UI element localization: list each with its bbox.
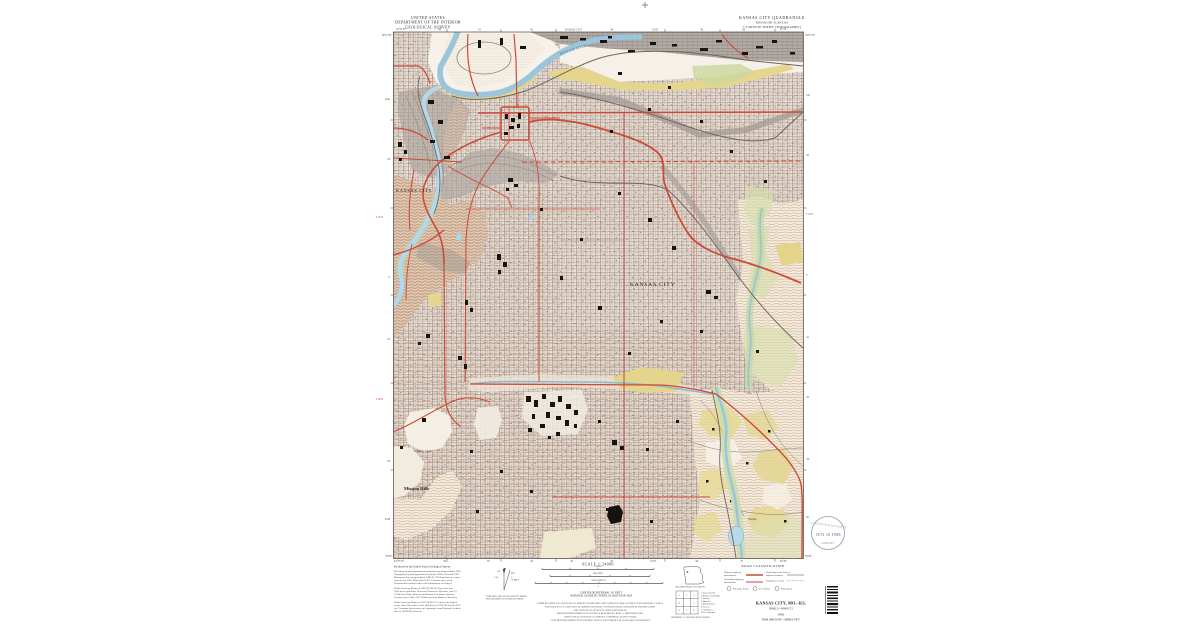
svg-text:1991: 1991 <box>778 613 785 617</box>
svg-text:QUADRANGLE LOCATION: QUADRANGLE LOCATION <box>675 586 704 589</box>
svg-text:18 MILS: 18 MILS <box>511 580 520 582</box>
svg-text:T 50 N: T 50 N <box>376 216 383 219</box>
svg-text:MN: MN <box>511 573 515 575</box>
svg-text:94°30': 94°30' <box>780 28 787 31</box>
svg-text:hard surface: hard surface <box>724 581 737 584</box>
svg-text:39°07'30": 39°07'30" <box>805 34 815 37</box>
svg-text:2 Kansas City North: 2 Kansas City North <box>701 595 721 597</box>
svg-text:1 MILE: 1 MILE <box>594 566 602 568</box>
svg-text:DEPARTMENT OF THE INTERIOR: DEPARTMENT OF THE INTERIOR <box>395 21 461 25</box>
svg-text:Produced by the United States: Produced by the United States Geological… <box>394 565 451 569</box>
svg-text:Mission Hills: Mission Hills <box>404 486 429 491</box>
svg-text:39°00': 39°00' <box>385 555 392 558</box>
svg-text:KANSAS CITY: KANSAS CITY <box>396 188 432 193</box>
svg-text:5 Independence: 5 Independence <box>701 604 715 606</box>
svg-text:KANSAS CITY QUADRANGLE: KANSAS CITY QUADRANGLE <box>739 15 805 20</box>
svg-text:Contours that conflict with re: Contours that conflict with revised plan… <box>394 582 452 585</box>
svg-text:MISSOURI–KANSAS: MISSOURI–KANSAS <box>756 20 788 24</box>
svg-text:improved surface: improved surface <box>766 574 784 577</box>
svg-text:KANSAS CITY, MO.–KS.: KANSAS CITY, MO.–KS. <box>756 601 806 606</box>
svg-text:JUN 16 1998: JUN 16 1998 <box>815 532 841 537</box>
svg-text:8 Lees Summit: 8 Lees Summit <box>701 612 715 614</box>
svg-text:GN: GN <box>497 571 501 573</box>
svg-text:DMA 5664 II SW—SERIES V875: DMA 5664 II SW—SERIES V875 <box>762 619 800 622</box>
svg-text:39°00': 39°00' <box>805 555 812 558</box>
svg-text:4338: 4338 <box>385 518 391 521</box>
svg-text:Unimproved road: Unimproved road <box>766 580 784 583</box>
svg-text:4344: 4344 <box>385 98 391 101</box>
svg-text:Survey NADCON software: Survey NADCON software <box>394 610 423 613</box>
svg-text:N3902.5—W9435/7.5: N3902.5—W9435/7.5 <box>769 608 794 611</box>
svg-text:39°07'30": 39°07'30" <box>382 34 392 37</box>
svg-text:1°: 1° <box>511 576 513 579</box>
svg-text:4 Shawnee: 4 Shawnee <box>701 601 711 603</box>
svg-text:94°30': 94°30' <box>780 560 787 563</box>
svg-text:NATIONAL GEODETIC VERTICAL DAT: NATIONAL GEODETIC VERTICAL DATUM OF 1929 <box>570 594 632 597</box>
svg-text:7 Grandview: 7 Grandview <box>701 609 713 611</box>
svg-text:32'30": 32'30" <box>652 29 659 32</box>
svg-text:ADJOINING 7.5′ QUADRANGLE NAME: ADJOINING 7.5′ QUADRANGLE NAMES <box>670 616 710 619</box>
svg-text:3 Liberty: 3 Liberty <box>701 598 710 600</box>
svg-text:ROAD CLASSIFICATION: ROAD CLASSIFICATION <box>742 564 785 568</box>
svg-text:7000 FEET: 7000 FEET <box>593 573 604 575</box>
svg-text:94°37'30": 94°37'30" <box>396 28 406 31</box>
svg-text:Swope: Swope <box>748 517 757 521</box>
svg-text:1 Leavenworth: 1 Leavenworth <box>701 593 716 595</box>
svg-text:KANSAS CITY: KANSAS CITY <box>565 29 582 32</box>
svg-text:UNITED STATES: UNITED STATES <box>411 16 445 20</box>
svg-text:94°37'30": 94°37'30" <box>394 560 404 563</box>
svg-text:1 KILOMETER: 1 KILOMETER <box>591 580 606 582</box>
svg-text:7.5 MINUTE SERIES (TOPOGRAPHIC: 7.5 MINUTE SERIES (TOPOGRAPHIC) <box>743 25 801 29</box>
svg-text:(western zone). Blue 1927 Nort: (western zone). Blue 1927 North American… <box>394 596 458 599</box>
svg-text:32'30": 32'30" <box>650 560 657 563</box>
svg-text:hard surface: hard surface <box>724 574 737 577</box>
svg-text:DECLINATION AT CENTER OF SHEET: DECLINATION AT CENTER OF SHEET <box>486 598 524 601</box>
svg-text:35': 35' <box>478 29 482 32</box>
svg-text:LIBRARY: LIBRARY <box>821 541 835 545</box>
svg-text:35': 35' <box>487 560 491 563</box>
svg-text:Interstate Route: Interstate Route <box>733 588 750 591</box>
svg-text:T 49 N: T 49 N <box>376 398 383 401</box>
svg-text:6 Lenexa: 6 Lenexa <box>701 607 709 609</box>
svg-text:U.S. Route: U.S. Route <box>759 588 771 591</box>
svg-text:State Route: State Route <box>781 588 793 591</box>
svg-text:UTM GRID AND 1991 MAGNETIC NOR: UTM GRID AND 1991 MAGNETIC NORTH <box>486 595 527 598</box>
svg-text:0°41': 0°41' <box>494 576 499 579</box>
svg-text:A FOLDER DESCRIBING TOPOGRAPHI: A FOLDER DESCRIBING TOPOGRAPHIC MAPS AND… <box>550 619 651 622</box>
svg-text:KANSAS CITY: KANSAS CITY <box>630 282 675 288</box>
svg-text:Country Club: Country Club <box>414 449 432 453</box>
svg-text:T 50 N: T 50 N <box>806 213 813 216</box>
svg-text:GEOLOGICAL SURVEY: GEOLOGICAL SURVEY <box>405 25 450 29</box>
